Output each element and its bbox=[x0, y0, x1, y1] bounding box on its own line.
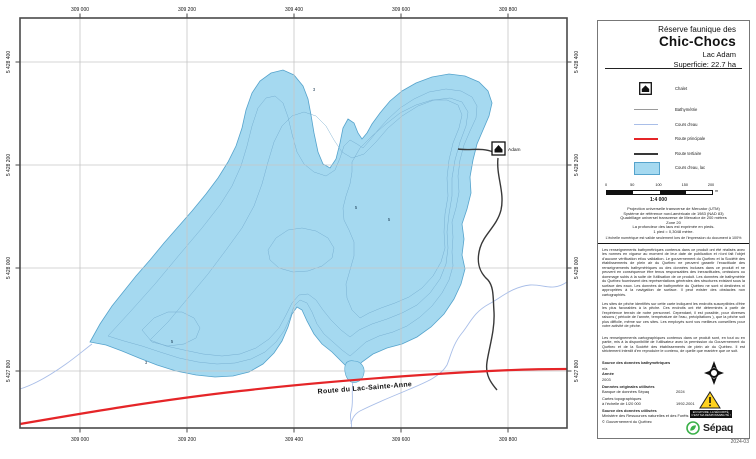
legend-bathymetry-symbol bbox=[634, 109, 658, 110]
y-coord-label: 5 428 200 bbox=[574, 154, 580, 176]
source-orig-year: 2024 bbox=[676, 389, 685, 394]
scale-tick: 100 bbox=[655, 183, 661, 187]
sepaq-logo: Sépaq bbox=[686, 420, 746, 436]
y-coord-label: 5 428 000 bbox=[6, 257, 12, 279]
reserve-name: Réserve faunique des bbox=[658, 25, 736, 34]
source-used-name: Ministère des Ressources naturelles et d… bbox=[602, 413, 689, 418]
x-coord-label: 309 400 bbox=[285, 7, 303, 13]
source-year-value: 2003 bbox=[602, 377, 611, 382]
x-coord-label: 309 800 bbox=[499, 7, 517, 13]
source-orig-name: Banque de données Sépaq bbox=[602, 389, 649, 394]
source-bathy-value: n/a bbox=[602, 366, 607, 371]
sepaq-leaf-icon bbox=[686, 421, 700, 435]
source-year-label: Année bbox=[602, 371, 614, 376]
map-canvas: Route du Lac-Sainte-Anne 3 5 5 5 3 Adam bbox=[0, 0, 587, 459]
legend-stream-symbol bbox=[634, 124, 658, 125]
legend-label-bathymetry: Bathymétrie bbox=[675, 107, 697, 112]
title-divider bbox=[605, 68, 742, 69]
y-coord-label: 5 428 200 bbox=[6, 154, 12, 176]
scale-tick: 0 bbox=[605, 183, 607, 187]
scale-bar bbox=[606, 190, 713, 195]
projection-line: 1 pied = 0,3048 mètre. bbox=[601, 230, 746, 235]
projection-info: Projection universelle transverse de Mer… bbox=[601, 207, 746, 235]
panel-divider bbox=[598, 243, 749, 244]
warning-triangle-icon bbox=[699, 391, 721, 409]
legend-label-tertiary-road: Route tertiaire bbox=[675, 151, 701, 156]
x-coord-label: 309 000 bbox=[71, 437, 89, 443]
lake-name: Lac Adam bbox=[658, 50, 736, 59]
safety-slogan-line2: C'EST MA RESPONSABILITÉ ! bbox=[690, 414, 732, 417]
scale-validity-note: L'échelle numérique est valide seulement… bbox=[600, 236, 747, 240]
bathymetric-map-page: Route du Lac-Sainte-Anne 3 5 5 5 3 Adam bbox=[0, 0, 756, 459]
y-coord-label: 5 428 000 bbox=[574, 257, 580, 279]
y-coord-label: 5 427 800 bbox=[574, 360, 580, 382]
legend-label-stream: Cours d'eau bbox=[675, 122, 697, 127]
title-block: Réserve faunique des Chic-Chocs Lac Adam… bbox=[658, 25, 736, 69]
chalet-label: Adam bbox=[508, 147, 521, 153]
x-coord-label: 309 600 bbox=[392, 7, 410, 13]
source-topo-name: Cartes topographiques bbox=[602, 396, 641, 401]
park-name: Chic-Chocs bbox=[658, 34, 736, 49]
north-arrow-icon bbox=[704, 361, 724, 385]
legend-tertiary-road-symbol bbox=[634, 153, 658, 155]
safety-slogan: EN NATURE, LA SÉCURITÉ, C'EST MA RESPONS… bbox=[690, 410, 732, 418]
scale-ratio: 1:4 000 bbox=[606, 197, 711, 203]
legend-label-chalet: Chalet bbox=[675, 86, 687, 91]
source-copyright: © Gouvernement du Québec bbox=[602, 419, 652, 424]
source-bathy-header: Source des données bathymétriques bbox=[602, 360, 670, 365]
source-topo-scale: à l'échelle de 1/20 000 bbox=[602, 401, 641, 406]
legend-label-lake: Cours d'eau, lac bbox=[675, 165, 705, 170]
x-coord-label: 309 800 bbox=[499, 437, 517, 443]
legend-main-road-symbol bbox=[634, 138, 658, 140]
scale-unit: m bbox=[715, 189, 718, 193]
x-coord-label: 309 000 bbox=[71, 7, 89, 13]
scale-tick: 200 bbox=[708, 183, 714, 187]
chalet-marker bbox=[492, 142, 505, 155]
y-coord-label: 5 427 800 bbox=[6, 360, 12, 382]
source-used-header: Source des données utilisées bbox=[602, 408, 657, 413]
legend-chalet-symbol bbox=[639, 82, 652, 95]
sepaq-wordmark: Sépaq bbox=[703, 422, 733, 434]
x-coord-label: 309 600 bbox=[392, 437, 410, 443]
y-coord-label: 5 428 400 bbox=[6, 51, 12, 73]
cartography-copyright: Les renseignements cartographiques conte… bbox=[602, 336, 745, 354]
x-coord-label: 309 200 bbox=[178, 7, 196, 13]
y-coord-label: 5 428 400 bbox=[574, 51, 580, 73]
map-version: 2024-03 bbox=[731, 439, 749, 445]
x-coord-label: 309 400 bbox=[285, 437, 303, 443]
scale-tick: 150 bbox=[682, 183, 688, 187]
legend-label-main-road: Route principale bbox=[675, 136, 705, 141]
source-topo-years: 1992-2001 bbox=[676, 401, 695, 406]
x-coord-label: 309 200 bbox=[178, 437, 196, 443]
bathymetry-disclaimer: Les renseignements bathymétriques conten… bbox=[602, 248, 745, 297]
scale-tick: 50 bbox=[630, 183, 634, 187]
legend-lake-symbol bbox=[634, 162, 660, 175]
source-orig-header: Données originales utilisées bbox=[602, 384, 655, 389]
info-panel: Réserve faunique des Chic-Chocs Lac Adam… bbox=[597, 20, 750, 439]
fishing-sites-note: Les sites de pêche identifiés sur cette … bbox=[602, 302, 745, 329]
